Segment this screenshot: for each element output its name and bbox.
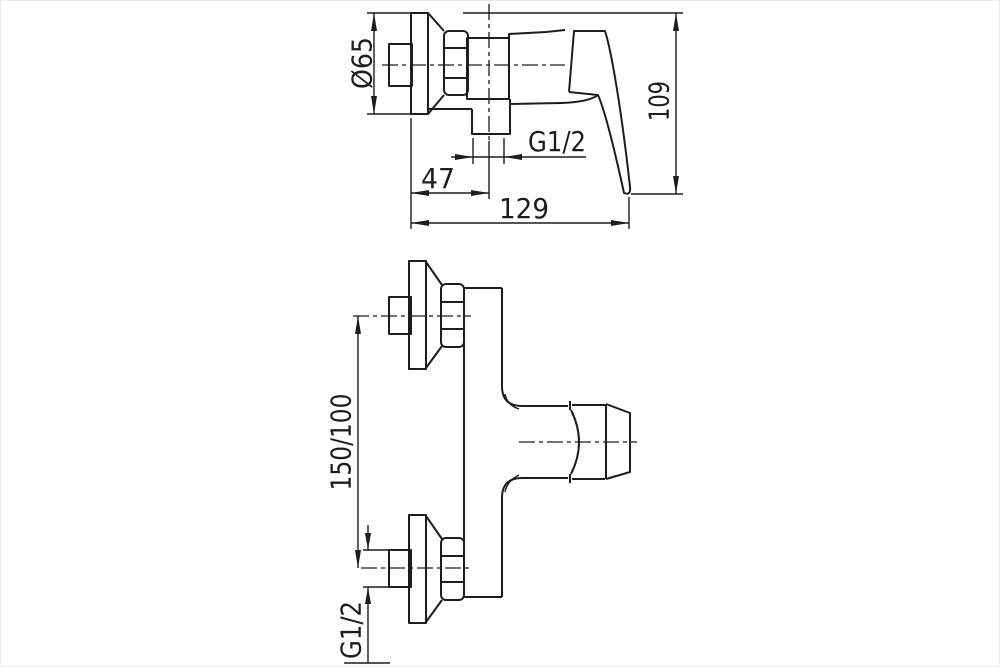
dim-label-outlet-thread: G1/2 [528, 125, 586, 158]
dim-label-outlet-offset: 47 [421, 162, 455, 195]
dim-overall-depth: 129 [411, 192, 629, 229]
dim-label-overall-height: 109 [643, 81, 676, 121]
lower-flange-cone [426, 516, 442, 622]
handle-lever [569, 31, 630, 194]
dim-label-flange-diameter: Ø65 [346, 37, 379, 89]
hex-nut [444, 31, 468, 95]
faucet-technical-drawing: Ø65 109 G1/2 47 129 [1, 1, 1000, 667]
side-view: Ø65 109 G1/2 47 129 [346, 4, 684, 229]
upper-union [389, 261, 464, 369]
body-right-edge-upper [502, 288, 568, 406]
wall-flange-plate [411, 13, 428, 114]
hex-nut-flats [444, 48, 468, 78]
lower-hex-nut-flats [441, 556, 464, 582]
dim-label-overall-depth: 129 [499, 192, 549, 225]
drawing-canvas: Ø65 109 G1/2 47 129 [0, 0, 1000, 667]
lower-union [389, 515, 464, 623]
dim-connection-spacing: 150/100 [325, 316, 362, 568]
body-right-edge-lower [502, 478, 568, 597]
cartridge-housing [467, 38, 509, 99]
mixer-body-bottom-edge [510, 95, 598, 104]
body-fillet-accents [505, 394, 519, 492]
dim-label-connection-thread: G1/2 [335, 601, 368, 659]
wall-flange-cone [428, 13, 444, 114]
lower-hex-nut [441, 538, 464, 600]
mixer-body-top-edge [509, 30, 565, 38]
dim-connection-thread: G1/2 [335, 525, 391, 663]
upper-flange-cone [426, 262, 442, 368]
body-column [464, 288, 502, 597]
dim-label-connection-spacing: 150/100 [325, 394, 358, 491]
dim-flange-diameter: Ø65 [346, 13, 412, 114]
shower-outlet [472, 104, 510, 134]
top-view: 150/100 G1/2 [325, 261, 638, 663]
